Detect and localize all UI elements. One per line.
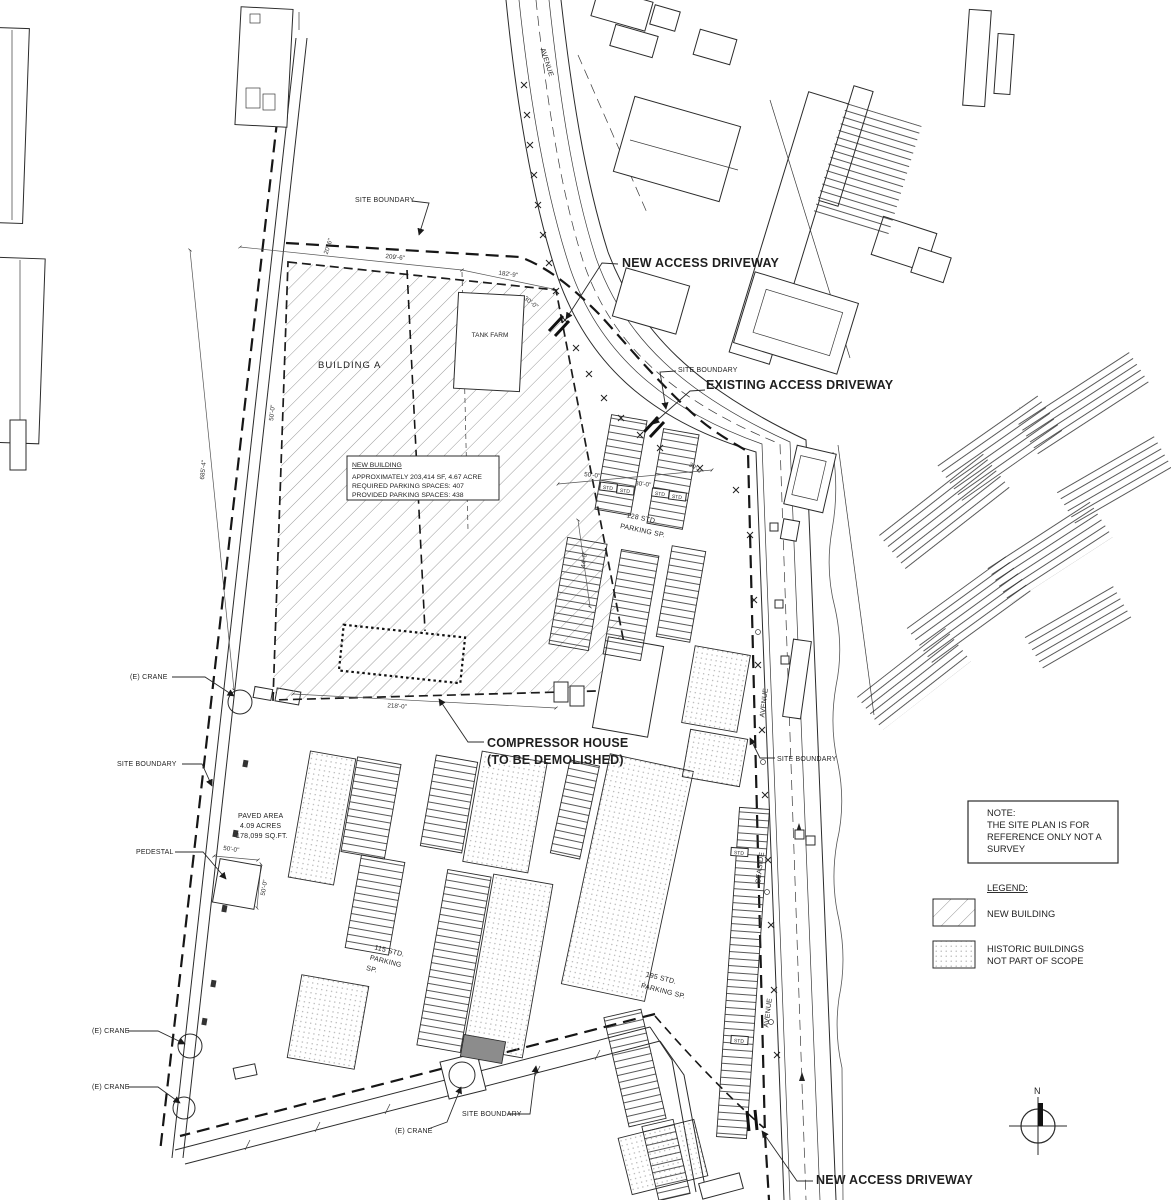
stall-tag-label: STD xyxy=(602,485,613,492)
wharf-structure xyxy=(233,1064,257,1079)
building-outline xyxy=(0,28,29,224)
parking-row xyxy=(656,546,705,643)
dim-label: 685'-4" xyxy=(199,460,208,480)
compressor-house-label: COMPRESSOR HOUSE xyxy=(487,736,628,750)
west-edge-buildings xyxy=(0,7,299,470)
note-line3: REFERENCE ONLY NOT A xyxy=(987,832,1102,842)
small-building xyxy=(784,445,836,512)
note-line4: SURVEY xyxy=(987,844,1025,854)
small-structure xyxy=(570,686,584,706)
building-outline xyxy=(693,29,737,64)
legend-swatch-historic xyxy=(933,941,975,968)
info-box-line2: REQUIRED PARKING SPACES: 407 xyxy=(352,483,464,490)
rail-sleeper xyxy=(242,760,248,768)
paved-area-label: PAVED AREA xyxy=(238,813,283,820)
legend-item-label: NEW BUILDING xyxy=(987,909,1055,919)
boundary-box xyxy=(770,523,778,531)
stall-tag: STD xyxy=(731,1035,749,1045)
site-boundary-label: SITE BOUNDARY xyxy=(462,1111,522,1118)
north-arrow: N xyxy=(1009,1086,1067,1155)
fence-x-icon xyxy=(546,260,552,266)
building-outline xyxy=(235,7,293,128)
legend-item-label: HISTORIC BUILDINGS xyxy=(987,944,1084,954)
note-box: NOTE: THE SITE PLAN IS FOR REFERENCE ONL… xyxy=(968,801,1118,863)
building-outline xyxy=(10,420,26,470)
site-boundary-label: SITE BOUNDARY xyxy=(117,761,177,768)
shore-structures xyxy=(770,445,836,845)
leader xyxy=(128,1031,185,1044)
north-arrow-needle xyxy=(1038,1103,1043,1126)
pedestal-outline xyxy=(212,859,261,910)
fence-x-icon xyxy=(573,345,579,351)
info-box-line1: APPROXIMATELY 203,414 SF, 4.67 ACRE xyxy=(352,474,482,481)
stall-tag: STD xyxy=(731,847,749,857)
street-label-avenue: AVENUE xyxy=(763,998,774,1028)
small-structure xyxy=(554,682,568,702)
fence-x-icon xyxy=(531,172,537,178)
fence-x-icon xyxy=(755,662,761,668)
boundary-box xyxy=(775,600,783,608)
note-line1: NOTE: xyxy=(987,808,1015,818)
fence-x-icon xyxy=(521,82,527,88)
dim-line xyxy=(214,856,258,860)
bulkhead-line xyxy=(838,445,874,715)
fence-x-icon xyxy=(759,727,765,733)
site-boundary-west xyxy=(160,60,284,1152)
paved-area-label3: 178,099 SQ.FT. xyxy=(236,833,288,840)
building-outline xyxy=(650,5,681,31)
compressor-house-label2: (TO BE DEMOLISHED) xyxy=(487,753,624,767)
leader xyxy=(750,738,775,758)
site-boundary-label: SITE BOUNDARY xyxy=(355,197,415,204)
leader xyxy=(128,1087,180,1103)
boundary-box xyxy=(806,836,815,845)
dim-label: 50'-0" xyxy=(260,879,270,896)
building-outline xyxy=(0,257,45,444)
fence-x-icon xyxy=(774,1052,780,1058)
historic-building xyxy=(682,729,747,786)
site-boundary-label: SITE BOUNDARY xyxy=(777,756,837,763)
leader xyxy=(439,699,484,742)
parking-row xyxy=(604,1009,666,1127)
parking-195-label: 195 STD. PARKING SP. xyxy=(640,971,689,1000)
fence-x-icon xyxy=(733,487,739,493)
small-building xyxy=(783,639,812,719)
dim-label: 218'-0" xyxy=(387,702,407,710)
new-building-info-box: NEW BUILDING APPROXIMATELY 203,414 SF, 4… xyxy=(347,456,499,500)
rail-sleeper xyxy=(210,980,216,988)
note-line2: THE SITE PLAN IS FOR xyxy=(987,820,1090,830)
wharf-tick xyxy=(385,1104,390,1114)
leader xyxy=(412,201,429,235)
new-access-driveway-label: NEW ACCESS DRIVEWAY xyxy=(816,1173,974,1187)
stall-tag-label: STD xyxy=(654,491,665,498)
existing-access-driveway-label: EXISTING ACCESS DRIVEWAY xyxy=(706,378,894,392)
stall-tag-label: STD xyxy=(734,850,745,857)
fence-x-icon xyxy=(524,112,530,118)
historic-building xyxy=(287,975,369,1070)
crane-label: (E) CRANE xyxy=(130,674,168,681)
stall-tag-label: STD xyxy=(671,494,682,501)
wharf-tick xyxy=(245,1140,250,1150)
crane-label: (E) CRANE xyxy=(92,1084,130,1091)
leader xyxy=(508,1066,536,1114)
fence-post-icon xyxy=(761,760,766,765)
wharf-tick xyxy=(595,1050,600,1060)
dim-label: 50'-0" xyxy=(223,845,240,854)
building-outline xyxy=(612,268,689,334)
building-a-label: BUILDING A xyxy=(318,360,381,371)
building-outline xyxy=(994,34,1014,95)
crane-circle xyxy=(228,690,252,714)
fence-x-icon xyxy=(762,792,768,798)
marina-piers xyxy=(857,350,1171,730)
legend-item-label2: NOT PART OF SCOPE xyxy=(987,956,1083,966)
building-outline xyxy=(963,9,992,106)
traffic-arrow xyxy=(799,1072,805,1081)
info-box-line3: PROVIDED PARKING SPACES: 438 xyxy=(352,492,464,499)
crane-label: (E) CRANE xyxy=(395,1128,433,1135)
building-outline xyxy=(613,96,740,201)
dim-label: 30'-0" xyxy=(635,480,652,489)
legend-swatch-new-building xyxy=(933,899,975,926)
north-label: N xyxy=(1034,1086,1041,1096)
fence-x-icon xyxy=(601,395,607,401)
leader xyxy=(182,764,212,786)
dim-label: 182'-9" xyxy=(498,270,518,279)
pier-comb xyxy=(1024,585,1133,672)
driveway-marker xyxy=(747,1111,749,1131)
pedestal-label: PEDESTAL xyxy=(136,849,174,856)
boundary-box xyxy=(795,830,804,839)
fence-post-icon xyxy=(765,890,770,895)
new-access-driveway-label: NEW ACCESS DRIVEWAY xyxy=(622,256,780,270)
small-building xyxy=(780,519,799,541)
street-label-avenue: AVENUE xyxy=(759,688,770,718)
site-plan-drawing: STD STD STD STD STD STD xyxy=(0,0,1171,1200)
building-outline xyxy=(911,247,951,282)
tank-farm-label: TANK FARM xyxy=(472,332,509,339)
driveway-marker xyxy=(755,1110,757,1130)
rail-sleeper xyxy=(201,1018,207,1026)
site-boundary-label: SITE BOUNDARY xyxy=(678,367,738,374)
street-label-avenue: AVENUE xyxy=(539,47,555,77)
boundary-box xyxy=(781,656,789,664)
stall-tag-label: STD xyxy=(619,488,630,495)
crane-label: (E) CRANE xyxy=(92,1028,130,1035)
fence-x-icon xyxy=(586,371,592,377)
historic-building xyxy=(288,751,356,885)
stall-tag-label: STD xyxy=(734,1038,745,1045)
parking-row xyxy=(647,429,699,530)
fence-x-icon xyxy=(527,142,533,148)
dim-label: 209'-6" xyxy=(385,253,405,262)
northeast-buildings xyxy=(591,0,1014,374)
paved-area-label2: 4.09 ACRES xyxy=(240,823,281,830)
historic-building xyxy=(682,646,751,733)
info-box-title: NEW BUILDING xyxy=(352,462,402,469)
building-outline xyxy=(610,24,658,57)
tank-farm-outline xyxy=(454,292,525,391)
parking-row xyxy=(345,855,405,955)
rail-structure xyxy=(253,687,273,701)
crane-circle xyxy=(178,1034,202,1058)
dim-label: 50'-0" xyxy=(268,404,277,421)
fence-x-icon xyxy=(768,922,774,928)
legend-title: LEGEND: xyxy=(987,883,1028,893)
dim-line xyxy=(190,250,234,690)
pier-comb xyxy=(857,628,971,730)
leader xyxy=(653,390,705,424)
legend: LEGEND: NEW BUILDING HISTORIC BUILDINGS … xyxy=(933,883,1084,968)
parking-115-line3: SP. xyxy=(365,965,377,974)
parking-row xyxy=(595,415,647,516)
wharf-tick xyxy=(315,1122,320,1132)
wharf-rail xyxy=(185,1041,660,1164)
fence-post-icon xyxy=(756,630,761,635)
rail-sleeper xyxy=(221,905,227,913)
